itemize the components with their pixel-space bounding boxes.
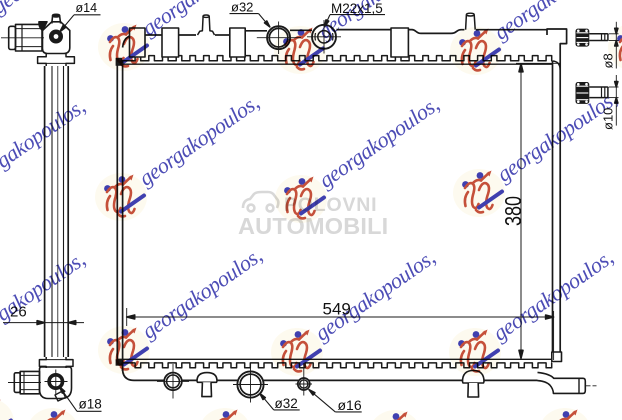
svg-text:380: 380 — [501, 196, 527, 226]
svg-text:ø16: ø16 — [338, 397, 362, 413]
svg-text:ø14: ø14 — [76, 1, 98, 15]
svg-text:ø18: ø18 — [79, 396, 102, 411]
svg-text:ø32: ø32 — [231, 0, 253, 15]
svg-text:ø32: ø32 — [275, 396, 298, 411]
